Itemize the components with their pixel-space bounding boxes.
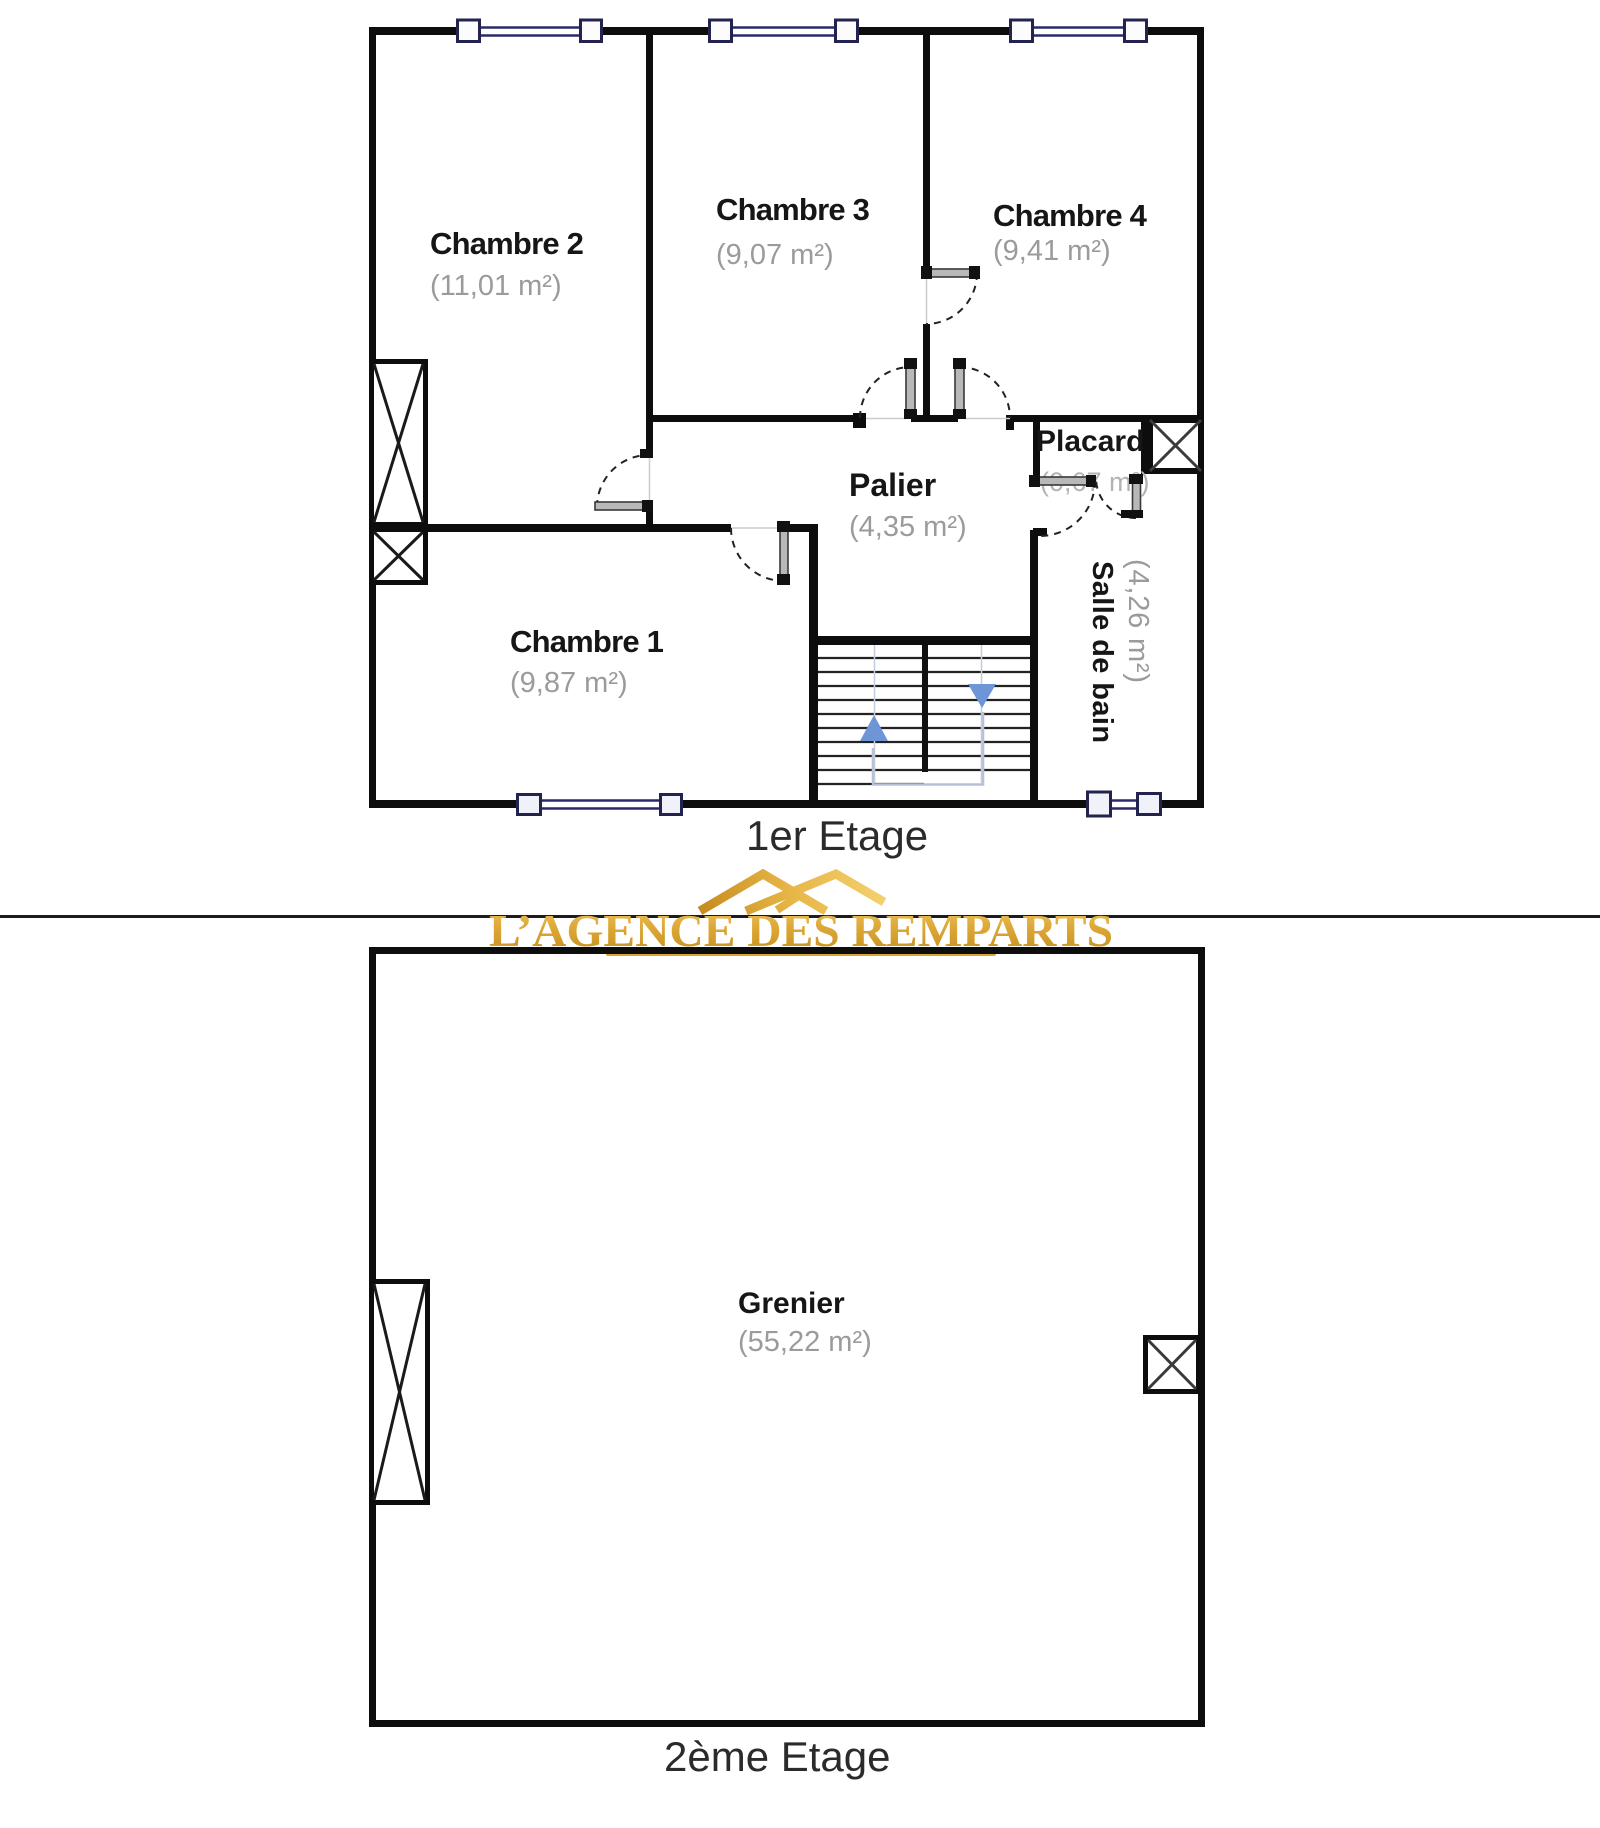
svg-text:(9,07 m²): (9,07 m²) [716,239,834,271]
svg-text:(4,26 m²): (4,26 m²) [1122,559,1154,684]
svg-text:Salle de bain: Salle de bain [1086,561,1118,744]
svg-text:(9,41 m²): (9,41 m²) [993,235,1111,267]
svg-text:(9,87 m²): (9,87 m²) [510,667,628,699]
svg-text:Palier: Palier [849,467,936,503]
svg-text:(11,01 m²): (11,01 m²) [430,270,562,302]
svg-text:Grenier: Grenier [738,1287,845,1320]
svg-text:(4,35 m²): (4,35 m²) [849,511,967,543]
svg-text:Chambre 1: Chambre 1 [510,624,664,659]
svg-text:Placard: Placard [1036,425,1144,458]
svg-text:2ème Etage: 2ème Etage [664,1733,891,1780]
svg-text:Chambre 2: Chambre 2 [430,226,583,261]
svg-text:(55,22 m²): (55,22 m²) [738,1326,872,1358]
svg-text:Chambre 4: Chambre 4 [993,198,1148,233]
svg-text:Chambre 3: Chambre 3 [716,192,870,227]
svg-text:1er Etage: 1er Etage [746,812,928,859]
